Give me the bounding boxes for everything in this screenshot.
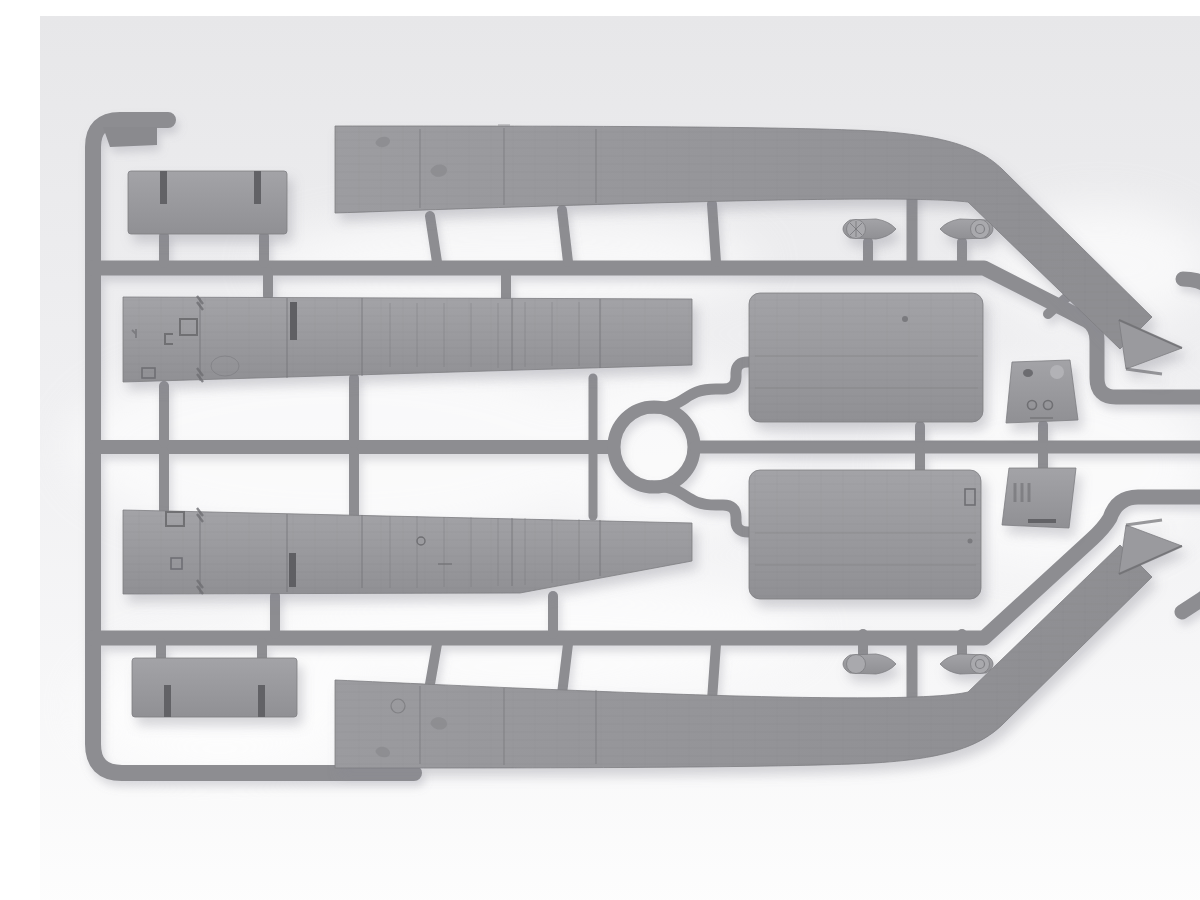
cap-boss <box>971 220 990 239</box>
side-upper-slot <box>290 302 297 340</box>
sprue-scene <box>40 16 1200 900</box>
plate-lower-slot-1 <box>164 685 171 717</box>
sprue-render: 3D render of a gray injection-moulded pl… <box>40 16 1200 900</box>
canvas-upper-dot <box>902 316 908 322</box>
cap-boss <box>847 655 866 674</box>
bulkhead-upper-hole <box>1023 369 1033 377</box>
small-plate-top-left <box>103 127 157 147</box>
bulkhead-lower-slot <box>1028 519 1056 523</box>
side-lower-slot <box>289 553 296 587</box>
bulkhead-upper <box>1006 360 1078 423</box>
canvas-panel-lower <box>749 470 981 599</box>
bulkhead-lower <box>1002 468 1076 528</box>
canvas-lower-dot <box>968 539 973 544</box>
cap-boss <box>971 655 990 674</box>
plate-upper-slot-1 <box>160 171 167 204</box>
slotted-plate-lower-left <box>132 658 297 717</box>
bulkhead-upper-boss <box>1050 365 1064 379</box>
plate-upper-slot-2 <box>254 171 261 204</box>
slotted-plate-upper-left <box>128 171 287 234</box>
canvas-panel-upper <box>749 293 983 422</box>
plate-lower-slot-2 <box>258 685 265 717</box>
